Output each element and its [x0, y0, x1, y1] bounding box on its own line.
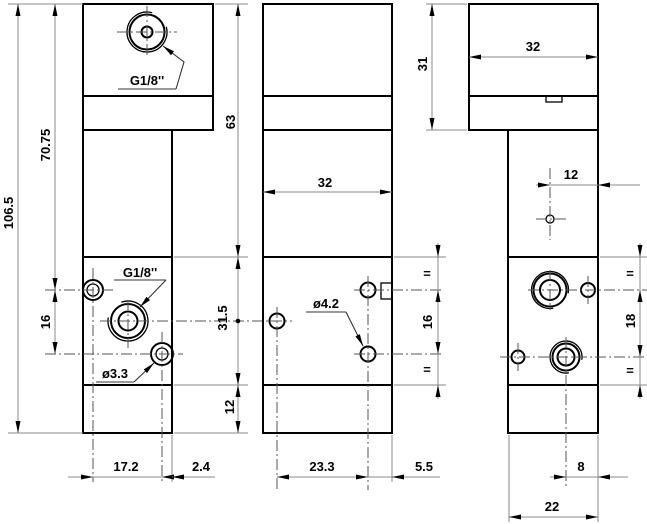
- right-view-body-outline: [469, 4, 598, 433]
- hole33-leader: [134, 363, 154, 382]
- dim-side-hole-spacing-y: 18: [623, 314, 638, 328]
- front-view: [263, 4, 444, 490]
- dim-side-hole2-offset: 8: [577, 459, 584, 474]
- dim-left-hole-x: 17.2: [113, 459, 138, 474]
- front-view-centerlines: [277, 276, 444, 490]
- left-view: [45, 4, 292, 482]
- extension-lines: [8, 4, 647, 522]
- dim-left-hole-spacing: 16: [38, 315, 53, 329]
- annotation-text: G1/8'' G1/8'' ø3.3 ø4.2 106.5 70.75 16 6…: [1, 39, 638, 514]
- front-view-body-outline: [263, 4, 392, 433]
- dim-upper-height: 70.75: [38, 129, 53, 162]
- dim-front-eq-bottom: =: [423, 362, 431, 377]
- dimension-lines: [18, 4, 640, 517]
- dim-front-hole-spacing-x: 23.3: [309, 459, 334, 474]
- hole-dia-42-label: ø4.2: [313, 296, 339, 311]
- dim-port-section: 31.5: [215, 305, 230, 330]
- dimension-arrows: [18, 4, 640, 517]
- dim-top-section: 63: [223, 115, 238, 129]
- dim-side-eq-top: =: [626, 266, 634, 281]
- dim-front-hole-edge: 5.5: [415, 459, 433, 474]
- dim-front-width: 32: [318, 175, 332, 190]
- dim-foot-height: 12: [222, 400, 237, 414]
- hole-dia-33-label: ø3.3: [102, 366, 128, 381]
- dim-side-head-width: 32: [526, 39, 540, 54]
- side-port-leader: [140, 280, 166, 307]
- dim-total-height: 106.5: [1, 197, 16, 230]
- dim-side-head-height: 31: [415, 57, 430, 71]
- dim-side-hole-offset: 12: [564, 167, 578, 182]
- top-port-label: G1/8'': [130, 73, 164, 88]
- centerline-dot: [236, 319, 241, 324]
- dim-side-eq-bottom: =: [626, 363, 634, 378]
- hole42-leader: [346, 312, 363, 346]
- side-port-label: G1/8'': [123, 265, 157, 280]
- dim-left-hole-edge: 2.4: [192, 459, 211, 474]
- dim-side-width: 22: [545, 499, 559, 514]
- technical-drawing-page: G1/8'' G1/8'' ø3.3 ø4.2 106.5 70.75 16 6…: [0, 0, 647, 524]
- technical-drawing: G1/8'' G1/8'' ø3.3 ø4.2 106.5 70.75 16 6…: [0, 0, 647, 524]
- dim-front-hole-spacing-y: 16: [420, 315, 435, 329]
- manual-override-square: [381, 283, 392, 299]
- dim-front-eq-top: =: [423, 266, 431, 281]
- right-view: [469, 4, 647, 486]
- top-port-leader: [163, 46, 184, 89]
